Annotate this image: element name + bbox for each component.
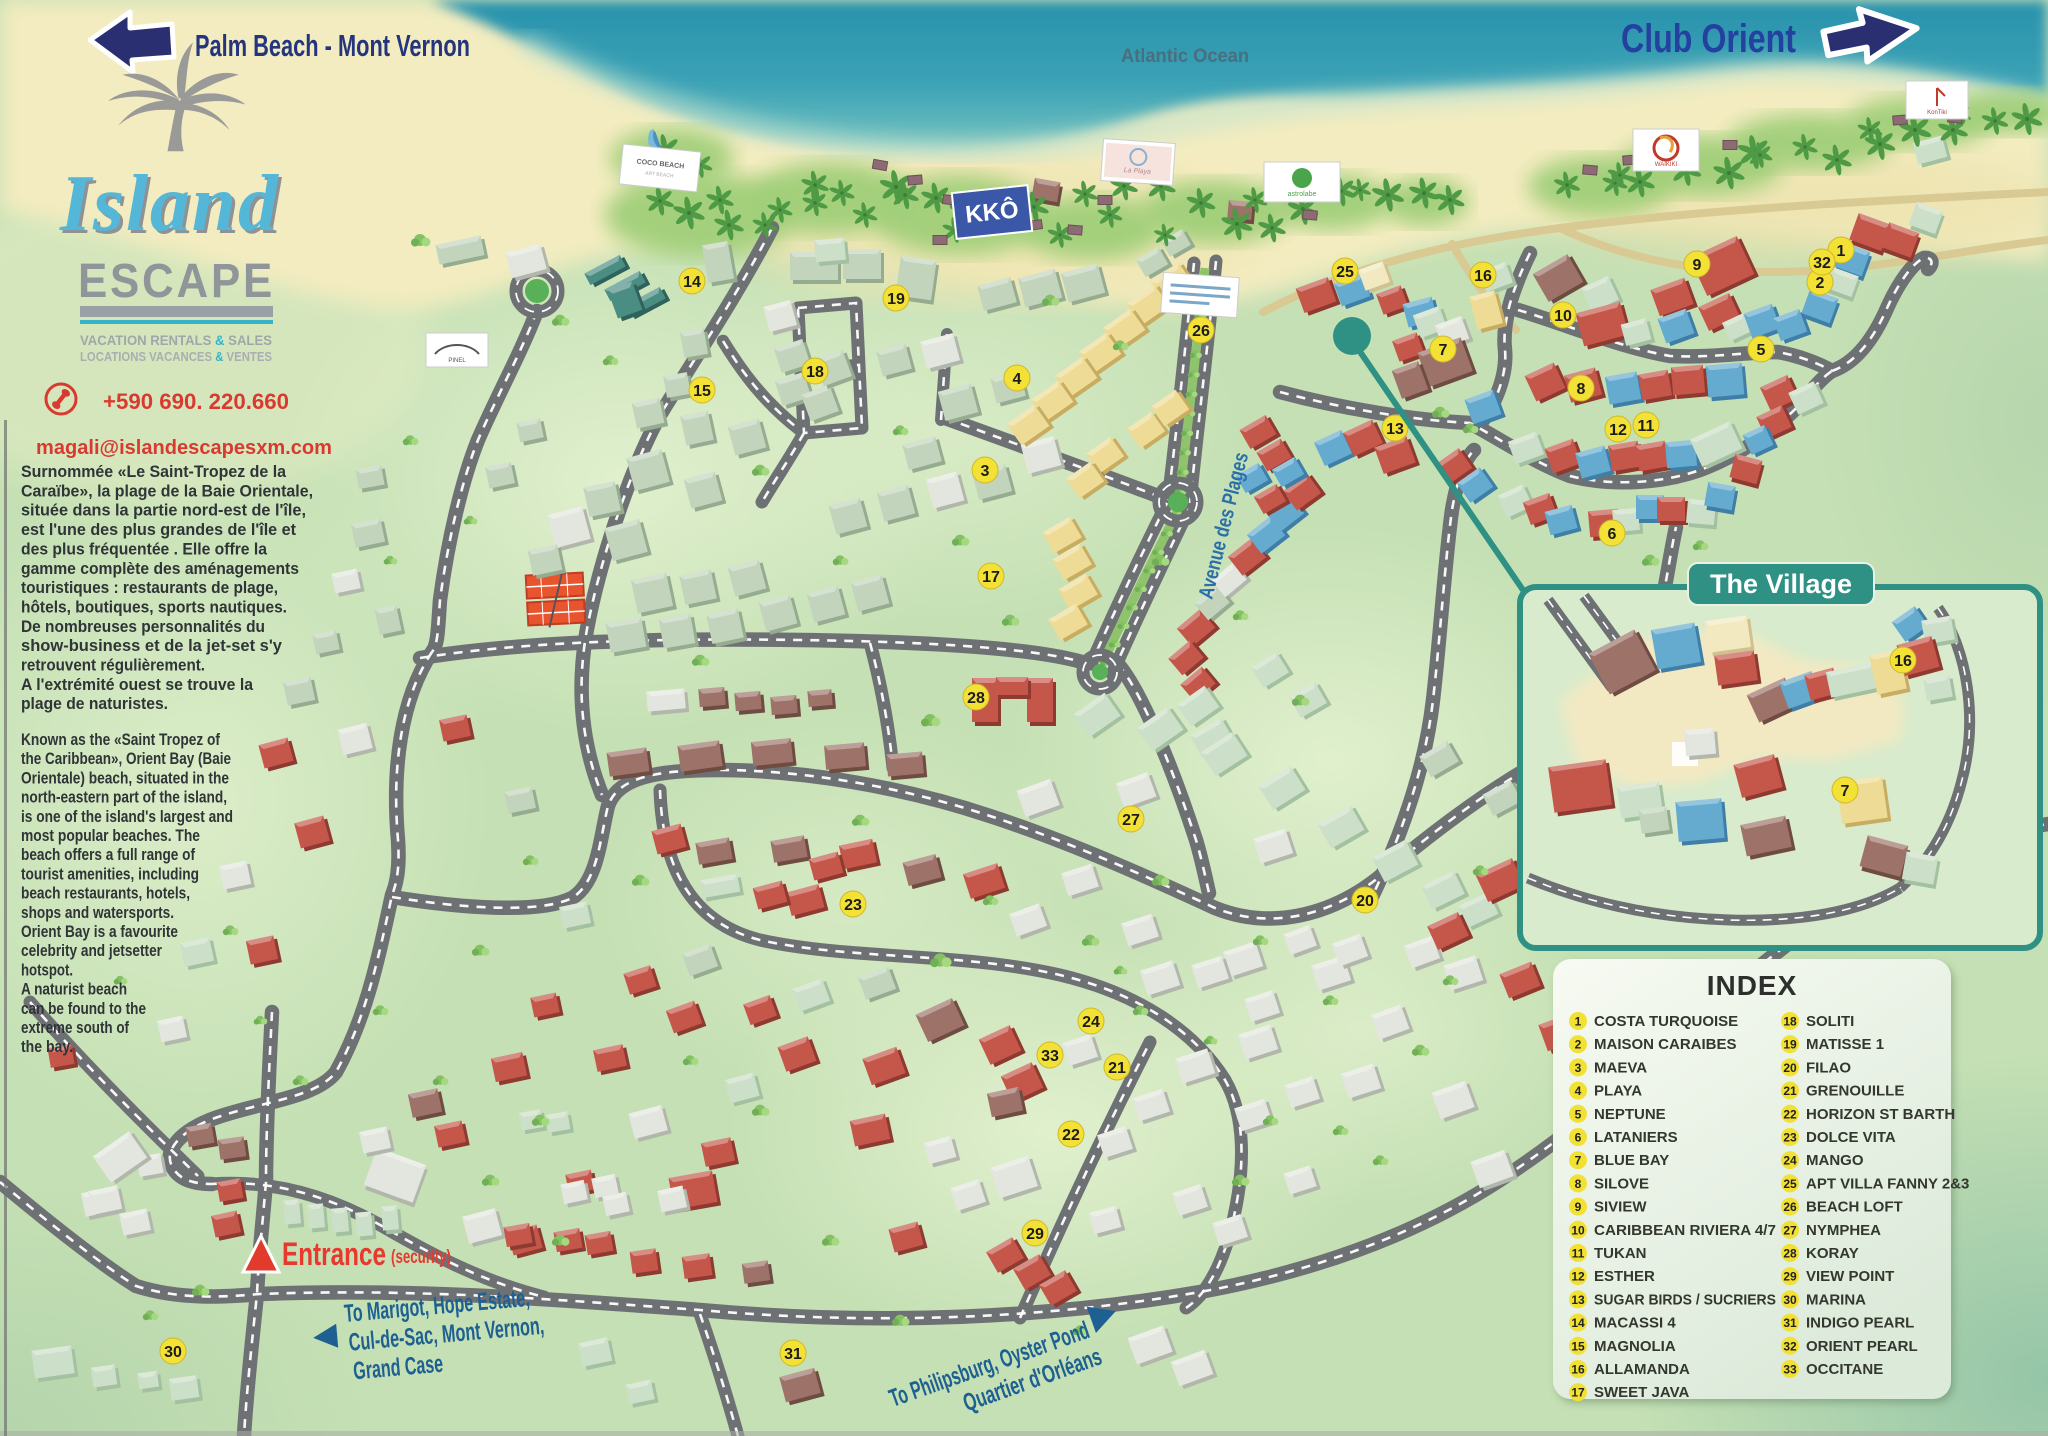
svg-text:Palm Beach - Mont Vernon: Palm Beach - Mont Vernon [195,28,470,63]
svg-text:32: 32 [1783,1339,1797,1353]
svg-text:29: 29 [1026,1226,1044,1243]
svg-text:30: 30 [1783,1293,1797,1307]
svg-text:20: 20 [1783,1061,1797,1075]
svg-text:19: 19 [1783,1038,1797,1052]
svg-text:1: 1 [1575,1015,1582,1029]
svg-text:magali@islandescapesxm.com: magali@islandescapesxm.com [36,437,332,459]
svg-text:NEPTUNE: NEPTUNE [1594,1106,1666,1123]
svg-text:11: 11 [1572,1247,1585,1261]
svg-text:PLAYA: PLAYA [1594,1083,1642,1100]
svg-text:4: 4 [1013,371,1022,388]
svg-text:shops and watersports.: shops and watersports. [21,904,174,922]
svg-text:2: 2 [1816,275,1825,292]
svg-text:22: 22 [1783,1107,1797,1121]
svg-text:33: 33 [1041,1048,1059,1065]
svg-text:11: 11 [1638,418,1655,435]
svg-text:26: 26 [1192,323,1210,340]
svg-text:LOCATIONS VACANCES & VENTES: LOCATIONS VACANCES & VENTES [80,350,272,364]
svg-text:hôtels, boutiques, sports naut: hôtels, boutiques, sports nautiques. [21,598,287,616]
svg-text:hotspot.: hotspot. [21,961,73,979]
svg-text:7: 7 [1575,1154,1582,1168]
svg-text:MATISSE 1: MATISSE 1 [1806,1036,1884,1053]
svg-text:24: 24 [1783,1154,1797,1168]
svg-text:NYMPHEA: NYMPHEA [1806,1222,1881,1239]
svg-text:27: 27 [1122,812,1140,829]
svg-text:ORIENT PEARL: ORIENT PEARL [1806,1338,1918,1355]
svg-text:28: 28 [1783,1247,1797,1261]
svg-text:18: 18 [806,364,824,381]
svg-text:23: 23 [844,897,862,914]
svg-text:12: 12 [1571,1270,1585,1284]
svg-text:5: 5 [1575,1107,1582,1121]
svg-text:20: 20 [1356,893,1374,910]
svg-text:15: 15 [693,383,711,400]
svg-text:8: 8 [1575,1177,1582,1191]
svg-text:retrouvent régulièrement.: retrouvent régulièrement. [21,657,205,675]
svg-text:Known as the «Saint Tropez of: Known as the «Saint Tropez of [21,731,221,749]
svg-text:9: 9 [1693,257,1702,274]
svg-text:INDIGO PEARL: INDIGO PEARL [1806,1315,1914,1332]
svg-text:19: 19 [887,291,905,308]
svg-text:MAISON CARAIBES: MAISON CARAIBES [1594,1036,1737,1053]
svg-text:5: 5 [1757,342,1766,359]
svg-text:23: 23 [1783,1131,1797,1145]
svg-text:beach offers a full range of: beach offers a full range of [21,846,196,864]
svg-text:Island: Island [59,160,279,248]
svg-text:16: 16 [1571,1363,1585,1377]
svg-text:TUKAN: TUKAN [1594,1245,1647,1262]
svg-text:KonTiki: KonTiki [1927,110,1947,116]
svg-text:12: 12 [1609,422,1627,439]
svg-text:17: 17 [1571,1386,1585,1400]
svg-text:The Village: The Village [1710,569,1852,599]
svg-text:De nombreuses personnalités du: De nombreuses personnalités du [21,618,265,636]
svg-text:SILOVE: SILOVE [1594,1175,1649,1192]
svg-text:24: 24 [1082,1014,1100,1031]
svg-text:HORIZON ST BARTH: HORIZON ST BARTH [1806,1106,1955,1123]
svg-text:10: 10 [1554,308,1572,325]
svg-text:26: 26 [1783,1200,1797,1214]
svg-text:touristiques : restaurants de: touristiques : restaurants de plage, [21,579,278,597]
svg-text:30: 30 [164,1344,182,1361]
svg-text:21: 21 [1783,1084,1797,1098]
svg-text:6: 6 [1608,526,1617,543]
svg-text:MARINA: MARINA [1806,1291,1866,1308]
svg-text:astrolabe: astrolabe [1288,191,1317,198]
svg-text:ESCAPE: ESCAPE [78,255,275,308]
svg-text:gamme complète des aménagement: gamme complète des aménagements [21,560,299,578]
svg-text:INDEX: INDEX [1707,970,1798,1001]
svg-text:MAEVA: MAEVA [1594,1059,1647,1076]
svg-text:can be found to the: can be found to the [21,1000,146,1018]
svg-text:GRENOUILLE: GRENOUILLE [1806,1083,1904,1100]
svg-text:1: 1 [1837,243,1846,260]
svg-text:celebrity and jetsetter: celebrity and jetsetter [21,942,163,960]
svg-text:4: 4 [1575,1084,1582,1098]
svg-text:WAIKIKI: WAIKIKI [1655,162,1678,168]
svg-text:MANGO: MANGO [1806,1152,1864,1169]
svg-text:Atlantic Ocean: Atlantic Ocean [1121,46,1249,67]
svg-text:Surnommée «Le Saint-Tropez de: Surnommée «Le Saint-Tropez de la [21,463,287,481]
svg-text:8: 8 [1577,381,1586,398]
svg-text:13: 13 [1571,1293,1585,1307]
svg-text:A naturist beach: A naturist beach [21,981,127,999]
svg-text:VIEW POINT: VIEW POINT [1806,1268,1894,1285]
svg-text:15: 15 [1571,1339,1585,1353]
svg-text:25: 25 [1336,264,1354,281]
svg-text:APT VILLA FANNY 2&3: APT VILLA FANNY 2&3 [1806,1175,1969,1192]
svg-text:SOLITI: SOLITI [1806,1013,1854,1030]
svg-text:18: 18 [1783,1015,1797,1029]
svg-text:the bay.: the bay. [21,1038,73,1056]
svg-text:située dans la partie nord-est: située dans la partie nord-est de l'île, [21,502,306,520]
svg-text:9: 9 [1575,1200,1582,1214]
svg-text:32: 32 [1813,255,1831,272]
svg-text:29: 29 [1783,1270,1797,1284]
svg-text:22: 22 [1062,1127,1080,1144]
svg-text:A l'extrémité ouest se trouve: A l'extrémité ouest se trouve la [21,676,254,694]
svg-text:SIVIEW: SIVIEW [1594,1199,1647,1216]
svg-text:13: 13 [1386,421,1404,438]
svg-text:beach restaurants, hotels,: beach restaurants, hotels, [21,885,190,903]
svg-text:7: 7 [1841,783,1850,800]
svg-text:KORAY: KORAY [1806,1245,1859,1262]
svg-text:MAGNOLIA: MAGNOLIA [1594,1338,1676,1355]
svg-text:FILAO: FILAO [1806,1059,1851,1076]
svg-text:BEACH LOFT: BEACH LOFT [1806,1199,1903,1216]
svg-text:SUGAR BIRDS / SUCRIERS: SUGAR BIRDS / SUCRIERS [1594,1291,1776,1308]
svg-text:PINEL: PINEL [448,358,466,364]
svg-text:tourist amenities, including: tourist amenities, including [21,865,199,883]
svg-text:BLUE BAY: BLUE BAY [1594,1152,1669,1169]
svg-text:25: 25 [1783,1177,1797,1191]
svg-text:CARIBBEAN RIVIERA 4/7: CARIBBEAN RIVIERA 4/7 [1594,1222,1776,1239]
svg-text:10: 10 [1571,1223,1585,1237]
svg-text:16: 16 [1894,653,1912,670]
svg-text:Orient Bay is a favourite: Orient Bay is a favourite [21,923,178,941]
svg-text:6: 6 [1575,1131,1582,1145]
svg-text:14: 14 [683,274,701,291]
svg-text:27: 27 [1783,1223,1797,1237]
svg-text:3: 3 [981,463,990,480]
svg-text:14: 14 [1571,1316,1585,1330]
svg-text:31: 31 [784,1346,802,1363]
svg-text:most popular beaches. The: most popular beaches. The [21,827,200,845]
svg-text:the Caribbean», Orient Bay (Ba: the Caribbean», Orient Bay (Baie [21,750,231,768]
svg-text:ESTHER: ESTHER [1594,1268,1655,1285]
svg-text:16: 16 [1474,268,1492,285]
svg-text:28: 28 [967,690,985,707]
svg-text:3: 3 [1575,1061,1582,1075]
svg-text:7: 7 [1439,342,1448,359]
svg-text:Caraïbe», la plage de la Baie: Caraïbe», la plage de la Baie Orientale, [21,482,313,500]
svg-text:extreme south of: extreme south of [21,1019,129,1037]
svg-text:Club Orient: Club Orient [1621,17,1796,61]
svg-text:2: 2 [1575,1038,1582,1052]
svg-text:31: 31 [1783,1316,1797,1330]
svg-text:33: 33 [1783,1363,1797,1377]
svg-text:VACATION RENTALS & SALES: VACATION RENTALS & SALES [80,332,272,348]
svg-text:+590 690. 220.660: +590 690. 220.660 [103,389,289,414]
svg-text:Orientale) beach, situated in: Orientale) beach, situated in the [21,769,229,787]
svg-text:OCCITANE: OCCITANE [1806,1361,1883,1378]
svg-text:DOLCE VITA: DOLCE VITA [1806,1129,1896,1146]
svg-text:des plus fréquentée . Elle off: des plus fréquentée . Elle offre la [21,540,268,558]
svg-text:north-eastern part of the isla: north-eastern part of the island, [21,789,227,807]
svg-text:est l'une des plus grandes de: est l'une des plus grandes de l'île et [21,521,296,539]
svg-text:17: 17 [982,569,1000,586]
svg-text:is one of the island's largest: is one of the island's largest and [21,808,233,826]
svg-text:(security): (security) [391,1247,451,1268]
svg-text:SWEET JAVA: SWEET JAVA [1594,1384,1689,1401]
svg-text:KKÔ: KKÔ [964,195,1020,228]
svg-text:COSTA TURQUOISE: COSTA TURQUOISE [1594,1013,1738,1030]
svg-text:Entrance: Entrance [282,1236,386,1272]
svg-text:plage de naturistes.: plage de naturistes. [21,695,168,713]
svg-text:show-business et de la jet-set: show-business et de la jet-set s'y [21,637,283,655]
svg-text:ALLAMANDA: ALLAMANDA [1594,1361,1690,1378]
svg-text:21: 21 [1108,1060,1126,1077]
svg-text:LATANIERS: LATANIERS [1594,1129,1678,1146]
svg-text:MACASSI 4: MACASSI 4 [1594,1315,1676,1332]
